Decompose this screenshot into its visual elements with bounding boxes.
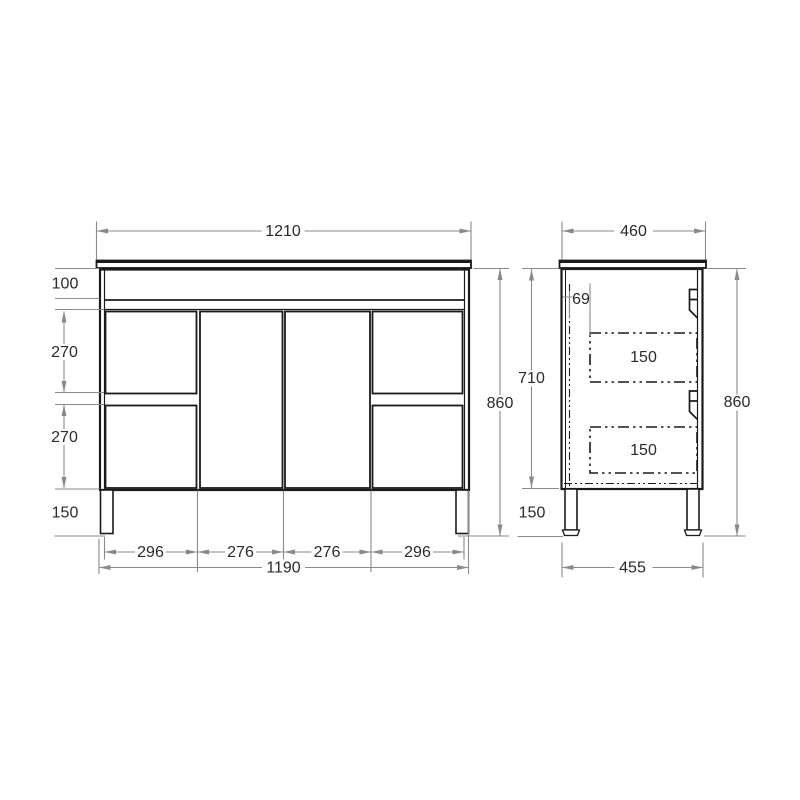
dim-label-side-leg: 150 (519, 505, 546, 522)
dim-label-front-leg: 150 (52, 505, 79, 522)
front-door-right (285, 312, 370, 489)
technical-drawing-canvas: 1210 100 270 270 150 860 (0, 0, 800, 800)
dim-countertop-depth: 460 (562, 222, 706, 260)
dim-label-right-drawers-width: 296 (404, 544, 431, 561)
dim-label-lower-drawer: 270 (51, 429, 78, 446)
dim-label-carcass-depth: 455 (619, 560, 646, 577)
dim-label-carcass-width: 1190 (266, 560, 301, 577)
dim-label-lower-drawer-box: 150 (630, 442, 657, 459)
dim-panel-widths: 296 276 276 296 (105, 544, 465, 561)
dim-label-left-drawers-width: 296 (137, 544, 164, 561)
dim-upper-drawer-height: 270 (50, 311, 79, 393)
dim-label-left-door-width: 276 (227, 544, 254, 561)
front-drawer-bottom-left (106, 406, 197, 489)
vanity-dimension-drawing: 1210 100 270 270 150 860 (0, 0, 800, 800)
dim-label-upper-drawer-box: 150 (630, 349, 657, 366)
side-leg-left (565, 489, 577, 530)
dim-carcass-depth: 455 (562, 543, 703, 578)
dim-label-countertop-depth: 460 (620, 223, 647, 240)
dim-label-countertop-width: 1210 (265, 223, 301, 240)
dim-label-front-overall-height: 860 (487, 395, 514, 412)
side-leg-right (687, 489, 699, 530)
dim-label-carcass-height: 710 (518, 370, 545, 387)
dim-label-side-overall-height: 860 (724, 394, 751, 411)
dim-side-overall-height: 860 (704, 269, 755, 537)
dim-label-upper-drawer: 270 (51, 344, 78, 361)
dim-label-top-band: 100 (52, 276, 79, 293)
front-leg-right (456, 490, 469, 534)
dim-countertop-width: 1210 (97, 222, 472, 260)
side-leg-left-foot (563, 530, 580, 536)
front-door-left (200, 312, 283, 489)
side-leg-right-foot (685, 530, 702, 536)
dim-lower-drawer-height: 270 (50, 405, 79, 489)
dim-label-right-door-width: 276 (314, 544, 341, 561)
front-leg-left (101, 490, 114, 534)
dim-carcass-height: 710 (515, 269, 560, 489)
dim-carcass-width: 1190 (99, 560, 469, 577)
front-drawer-top-right (373, 312, 463, 394)
front-drawer-top-left (106, 312, 197, 394)
dim-label-drawer-setback: 69 (572, 291, 590, 308)
front-left-extension-lines (54, 269, 105, 537)
front-drawer-bottom-right (373, 406, 463, 489)
